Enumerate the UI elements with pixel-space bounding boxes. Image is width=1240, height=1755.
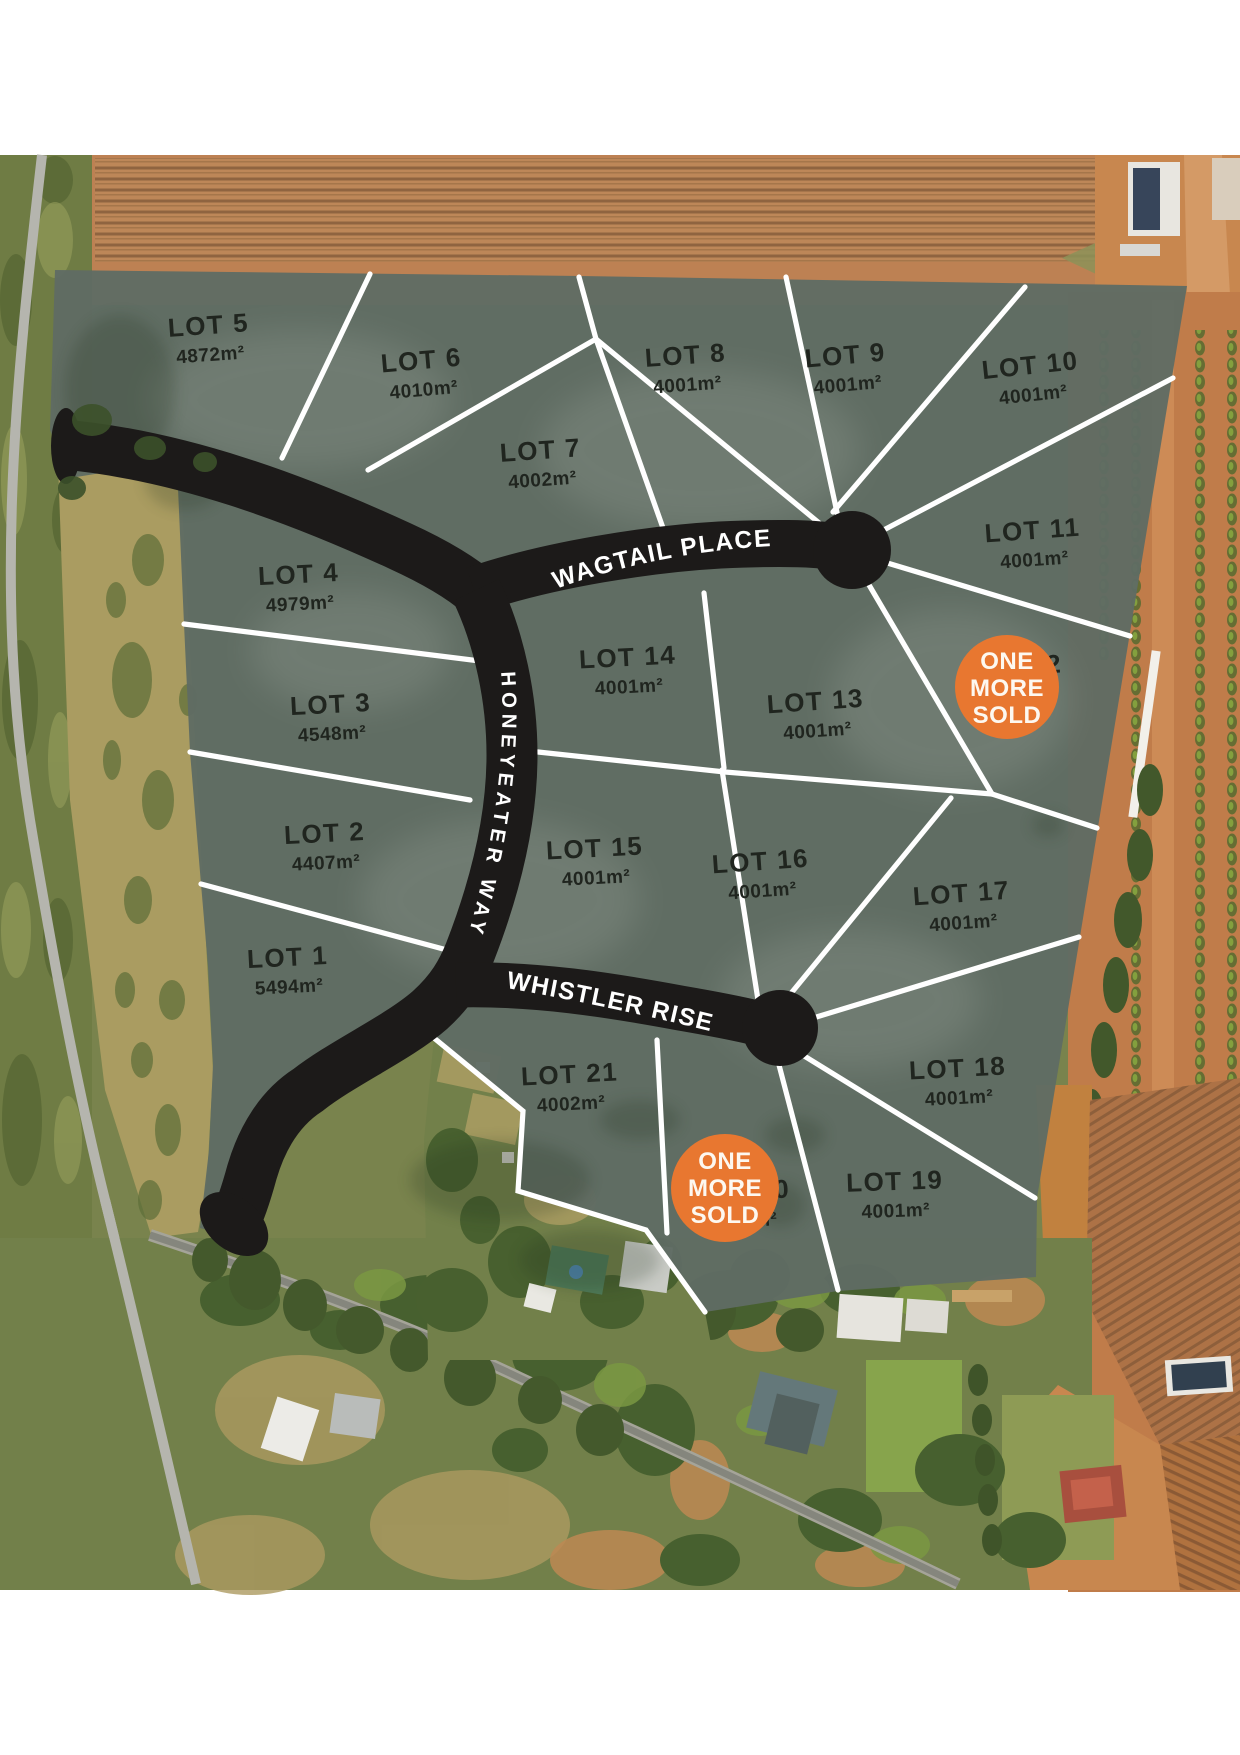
svg-text:LOT 15: LOT 15	[545, 830, 644, 865]
svg-text:ONE: ONE	[698, 1148, 752, 1175]
svg-text:LOT 19: LOT 19	[846, 1164, 944, 1197]
svg-text:ONE: ONE	[980, 648, 1034, 675]
svg-text:LOT 3: LOT 3	[289, 687, 372, 721]
svg-text:4407m²: 4407m²	[291, 851, 361, 876]
svg-text:LOT 8: LOT 8	[644, 337, 727, 373]
svg-text:4001m²: 4001m²	[861, 1200, 930, 1223]
svg-text:LOT 7: LOT 7	[499, 432, 582, 468]
svg-text:4001m²: 4001m²	[594, 675, 664, 700]
svg-text:LOT 21: LOT 21	[520, 1056, 619, 1091]
svg-text:MORE: MORE	[688, 1175, 762, 1202]
svg-text:5494m²: 5494m²	[254, 975, 324, 1000]
svg-text:LOT 4: LOT 4	[257, 557, 340, 591]
svg-text:4979m²: 4979m²	[265, 592, 335, 617]
svg-text:LOT 18: LOT 18	[908, 1050, 1007, 1085]
svg-text:4548m²: 4548m²	[297, 722, 367, 747]
svg-text:LOT 2: LOT 2	[283, 816, 366, 850]
svg-text:SOLD: SOLD	[973, 702, 1042, 729]
svg-text:MORE: MORE	[970, 675, 1044, 702]
svg-text:LOT 1: LOT 1	[246, 940, 329, 974]
svg-text:LOT 5: LOT 5	[167, 307, 250, 343]
svg-text:4001m²: 4001m²	[924, 1086, 994, 1111]
svg-text:4001m²: 4001m²	[561, 866, 631, 891]
svg-text:4002m²: 4002m²	[536, 1092, 606, 1117]
svg-text:SOLD: SOLD	[691, 1202, 760, 1229]
svg-text:LOT 14: LOT 14	[578, 639, 677, 674]
